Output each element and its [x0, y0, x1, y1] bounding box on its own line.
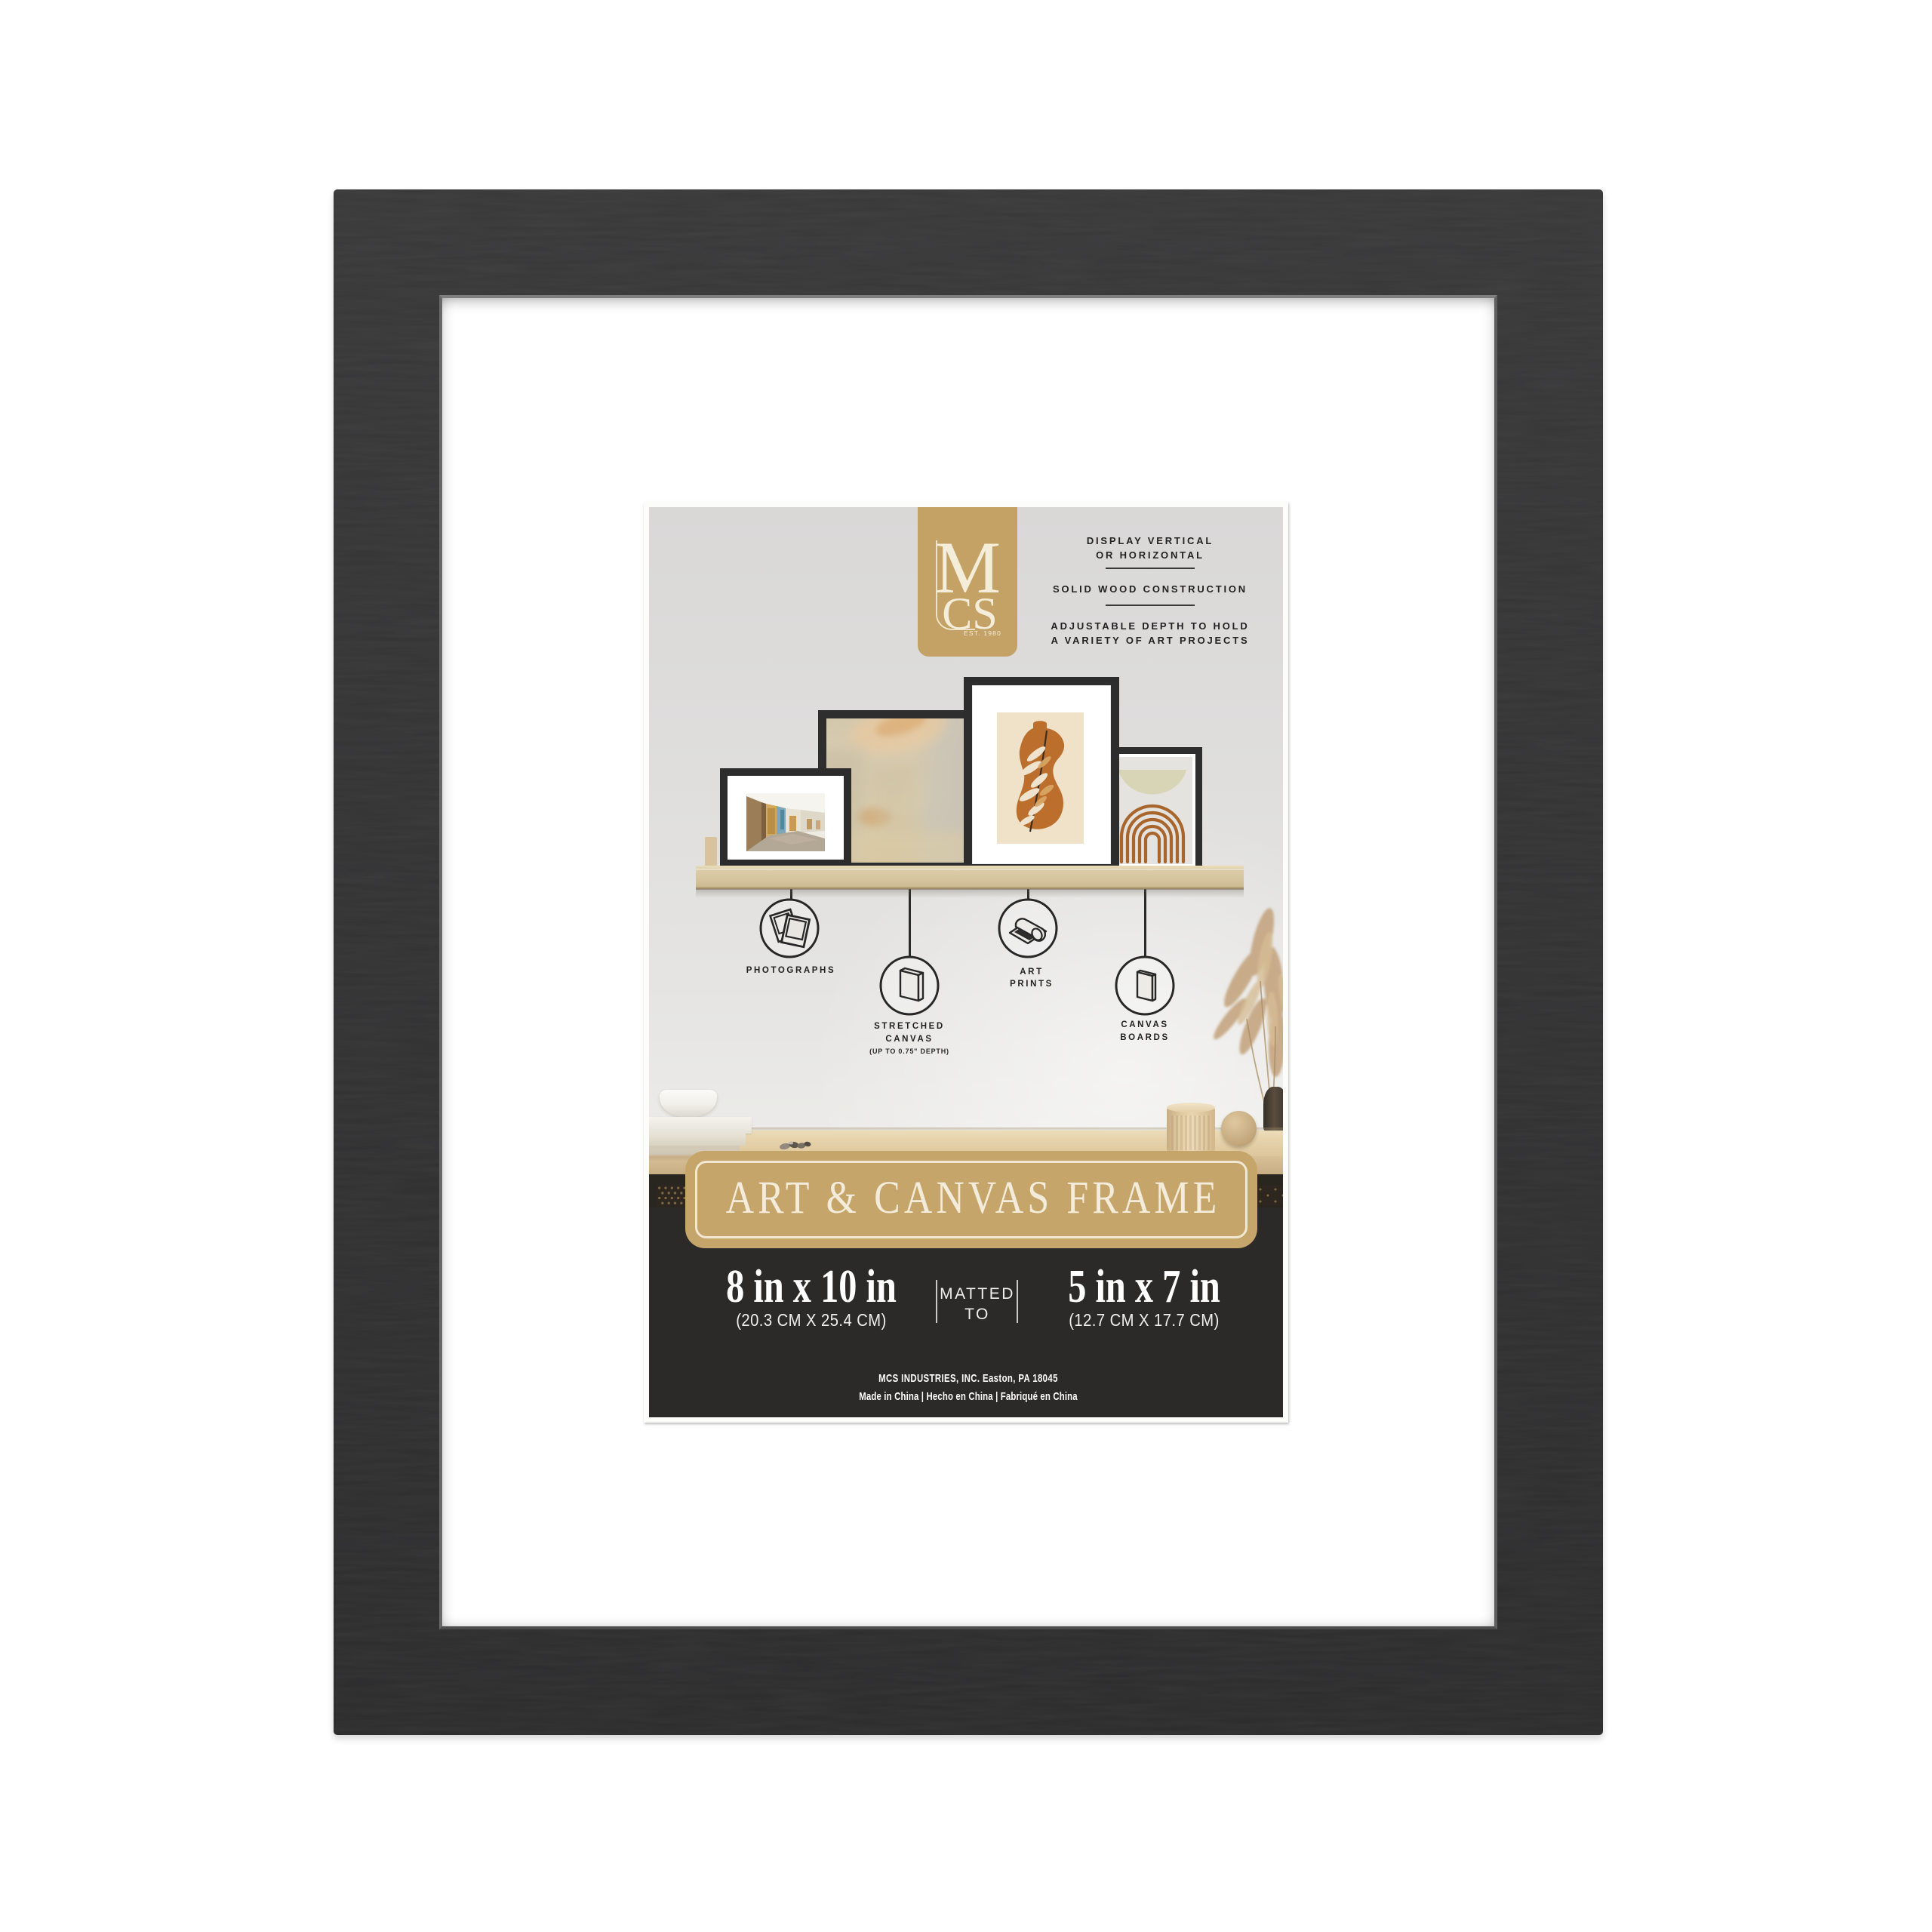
- svg-text:EST. 1980: EST. 1980: [964, 629, 1001, 637]
